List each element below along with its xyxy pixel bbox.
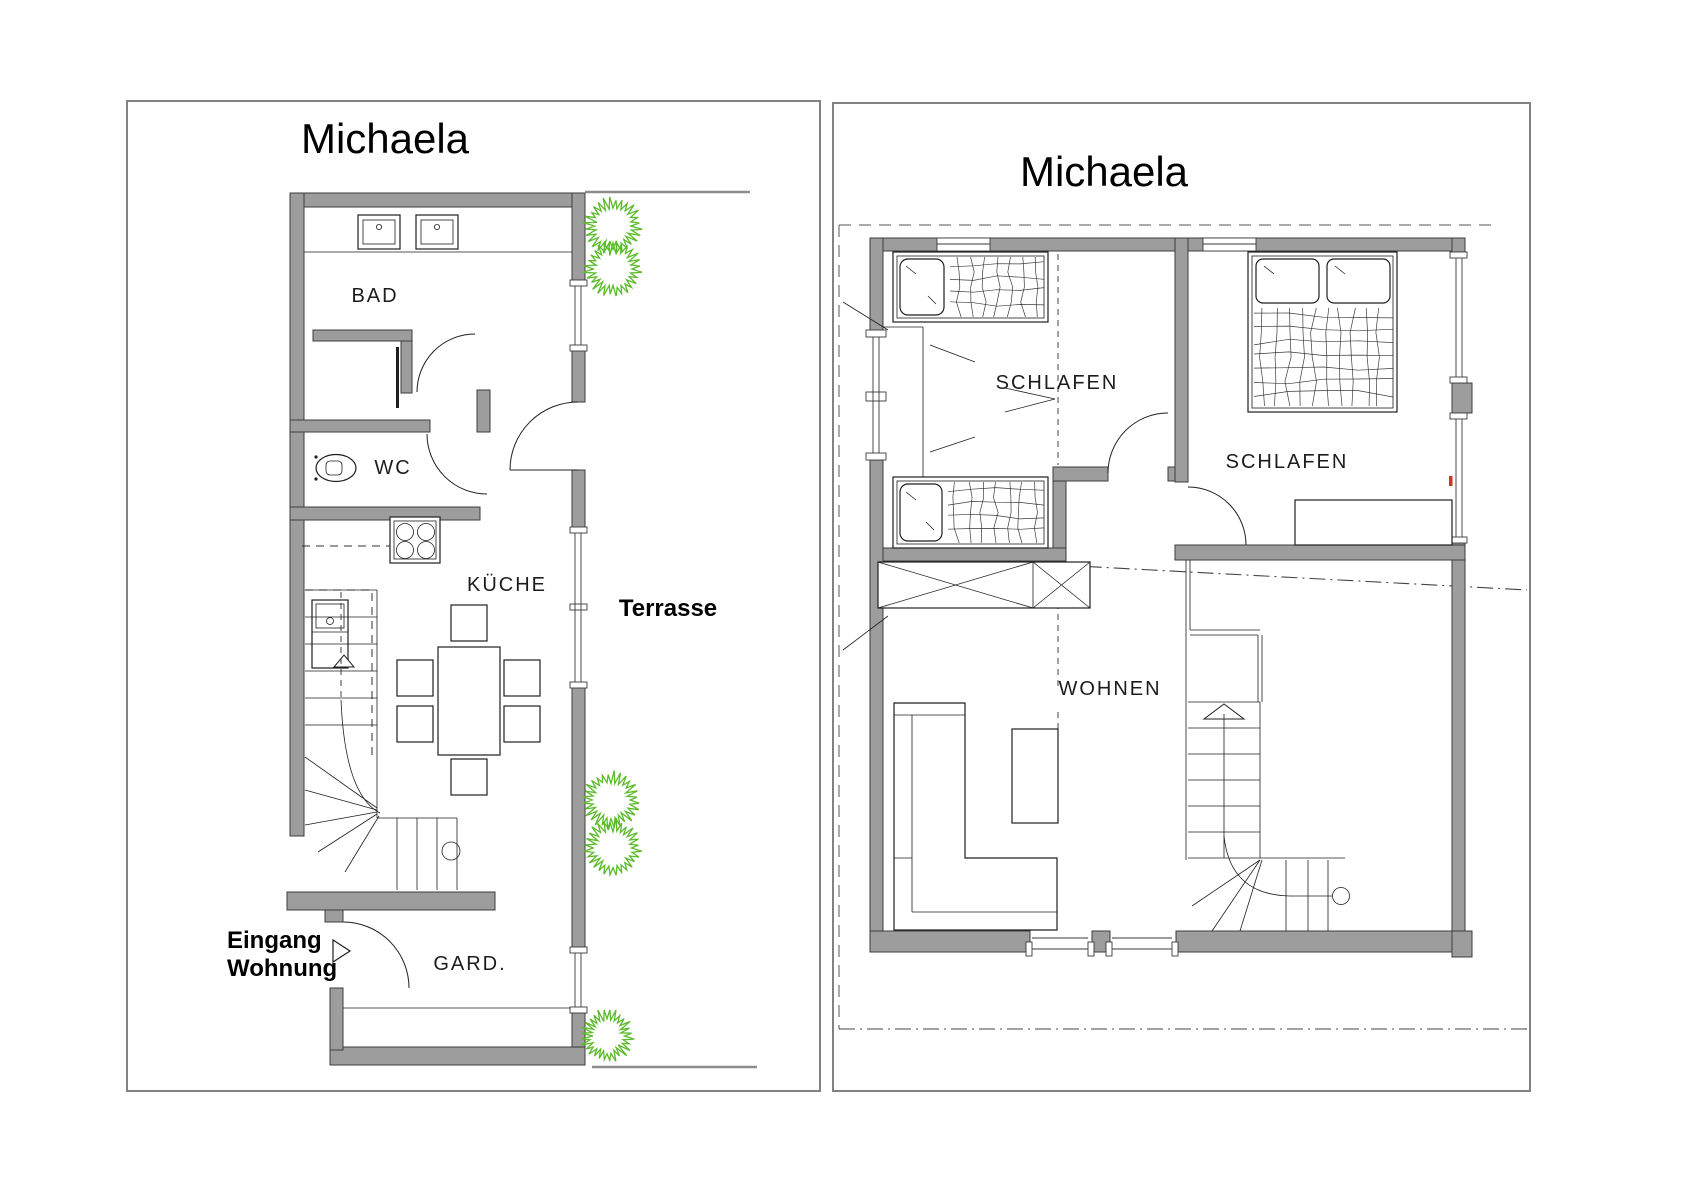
room-label-kueche: KÜCHE (467, 574, 547, 596)
wc-toilet (314, 455, 356, 482)
top-wall-window-right (1203, 238, 1256, 251)
bed-single-bottom (893, 477, 1048, 548)
gard-window (570, 947, 587, 1013)
room-label-schlafen-right: SCHLAFEN (1226, 451, 1349, 473)
staircase-upper-floor (1186, 560, 1350, 931)
bedroom-left-door-swing (1108, 413, 1168, 473)
bathroom-sinks (304, 215, 572, 252)
left-wall-window (866, 330, 886, 460)
entrance-door-swing (343, 922, 409, 988)
shrub-icon (583, 197, 642, 256)
label-terrasse: Terrasse (619, 595, 717, 622)
shrub-icon (583, 241, 642, 296)
label-eingang-line2: Wohnung (227, 955, 337, 982)
shrub-icon (584, 818, 641, 875)
ground-floor-plan: Michaela (127, 101, 820, 1091)
bottom-wall-window-right (1106, 938, 1178, 956)
bed-single-top (893, 252, 1048, 322)
bed-double (1248, 252, 1397, 412)
room-label-bad: BAD (351, 285, 398, 307)
floorplan-drawing: Michaela (0, 0, 1683, 1190)
window-marker-red (1449, 476, 1453, 486)
label-eingang-line1: Eingang (227, 927, 322, 954)
floorplan-sheet: Michaela (0, 0, 1683, 1190)
shrub-icon (581, 1010, 634, 1062)
room-label-wohnen: WOHNEN (1058, 678, 1161, 700)
bad-door-swing (417, 334, 475, 392)
room-label-schlafen-left: SCHLAFEN (996, 372, 1119, 394)
right-wall-window-upper (1450, 252, 1467, 383)
bad-window (570, 280, 587, 351)
kitchen-stove (390, 517, 440, 563)
wardrobe-closet (878, 562, 1090, 608)
bottom-wall-window-left (1026, 938, 1094, 956)
room-label-gard: GARD. (433, 953, 506, 975)
top-wall-window-left (937, 238, 990, 251)
room-label-wc: WC (374, 457, 411, 479)
wc-door-swing (427, 434, 487, 494)
sideboard (1295, 500, 1452, 545)
left-plan-title: Michaela (301, 115, 470, 162)
bad-door-leaf (396, 347, 399, 408)
shrub-icon (584, 771, 640, 830)
kitchen-sink-unit (312, 600, 354, 668)
kitchen-window (570, 527, 587, 688)
garden-shrubs (581, 197, 642, 1062)
upper-floor-plan: Michaela (833, 103, 1530, 1091)
dining-set (397, 605, 540, 795)
bedroom-right-door-swing (1188, 487, 1246, 545)
coffee-table (1012, 729, 1058, 823)
terrace-door-swing (510, 402, 578, 470)
right-plan-title: Michaela (1020, 148, 1189, 195)
